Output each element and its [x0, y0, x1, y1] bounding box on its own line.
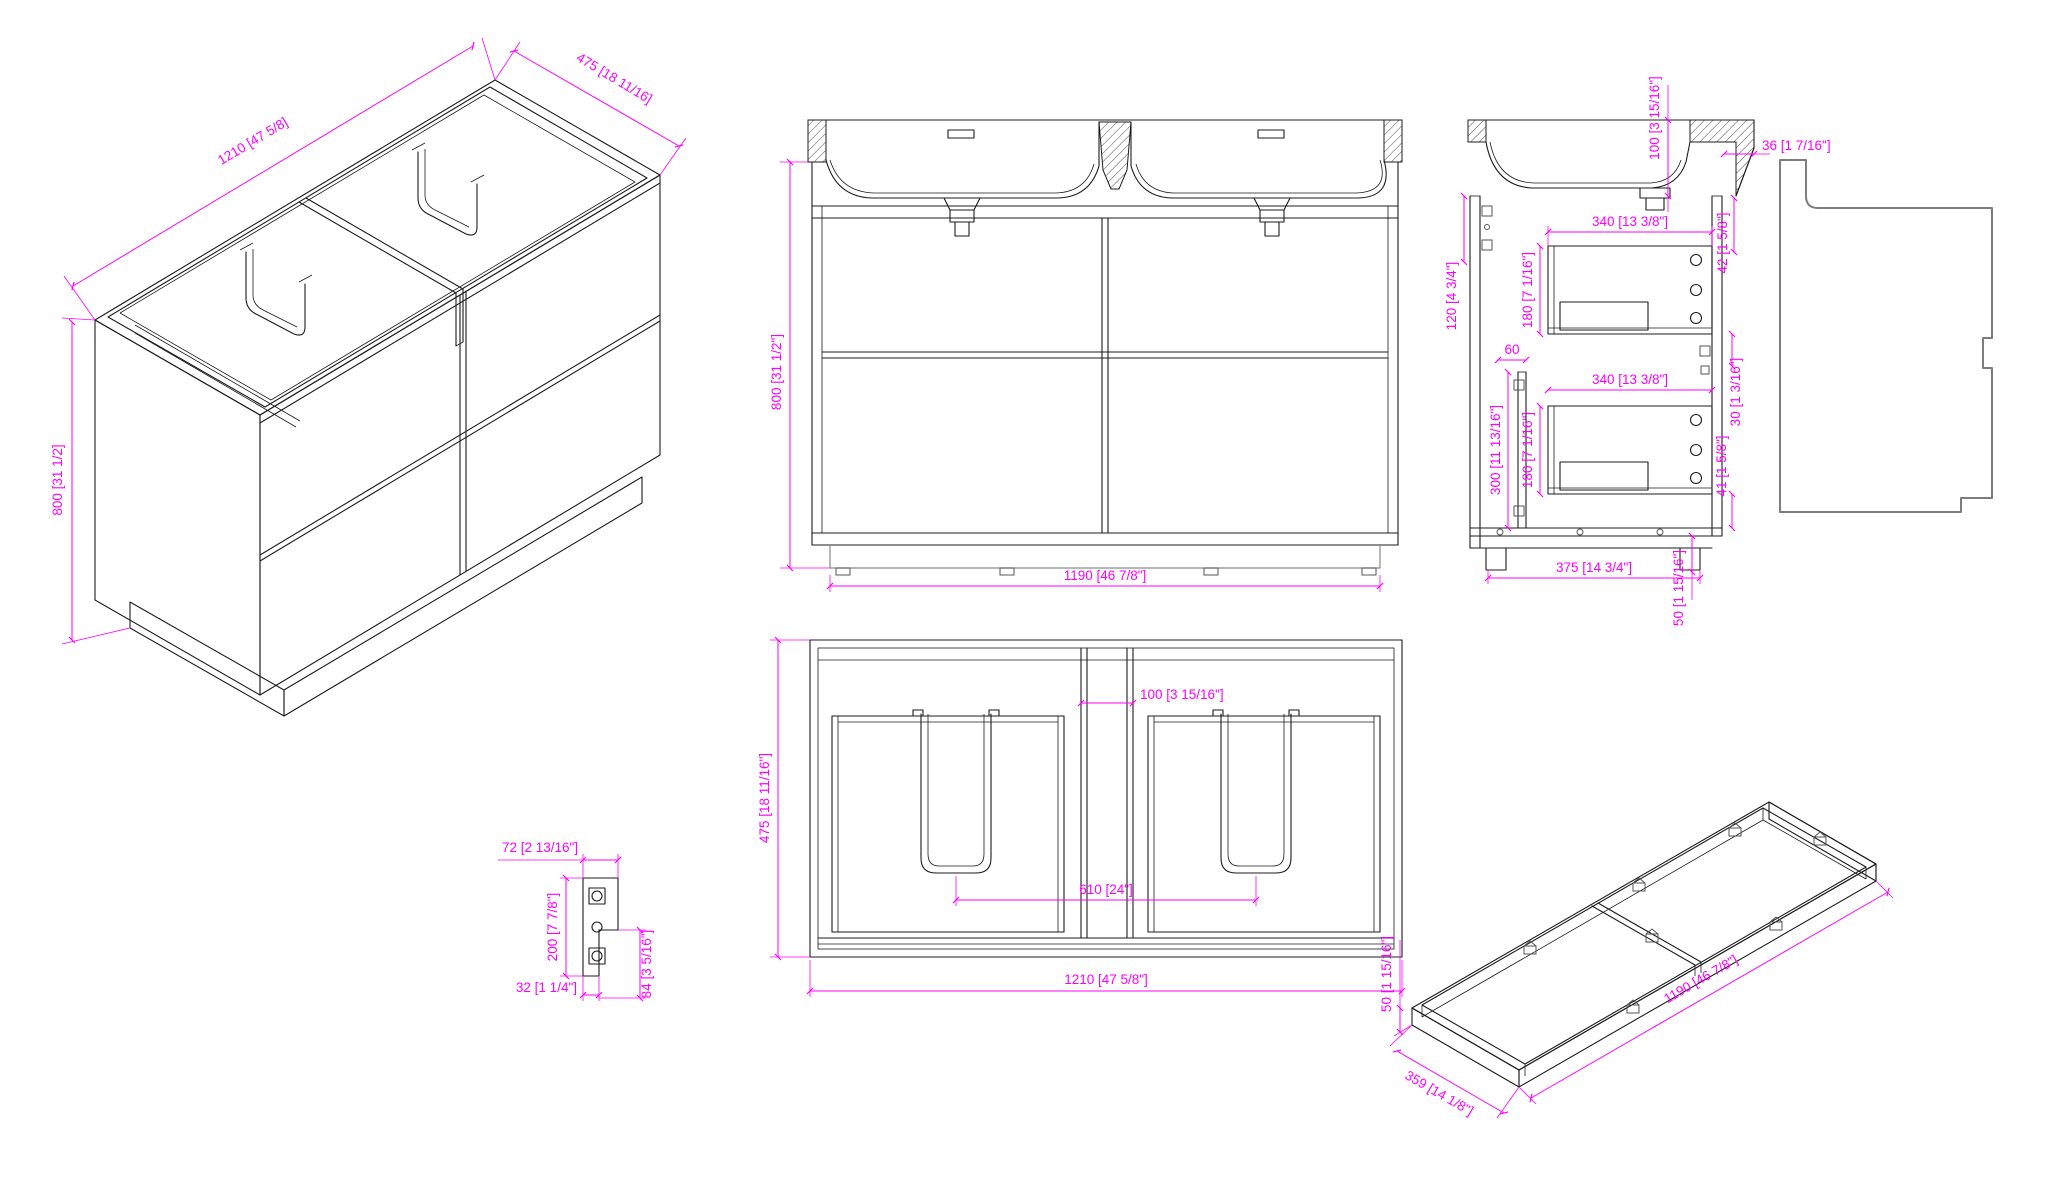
drain-trap-right: [1254, 198, 1290, 236]
dim-side-drawer2-height: 180 [7 1/16"]: [1520, 412, 1535, 488]
view-side-section: 100 [3 15/16"] 36 [1 7/16"] 42 [1 5/8"] …: [1444, 76, 1992, 626]
dim-frame-height: 50 [1 15/16"]: [1379, 936, 1394, 1012]
dim-side-drawer1-height: 180 [7 1/16"]: [1520, 252, 1535, 328]
dim-bracket-foot: 32 [1 1/4"]: [516, 980, 577, 995]
drawer-box-1-section: [1548, 246, 1712, 334]
side-counter-cut-front: [1690, 120, 1754, 196]
dim-side-overhang: 36 [1 7/16"]: [1762, 138, 1831, 153]
sink-bowl-left: [826, 122, 1099, 198]
technical-drawing-canvas: 1210 [47 5/8] 475 [18 11/16] 800 [31 1/2…: [0, 0, 2048, 1181]
dim-side-sink-depth: 100 [3 15/16"]: [1647, 76, 1662, 160]
overflow-slot-right: [1258, 130, 1284, 138]
dim-side-rail-offset: 60: [1504, 342, 1519, 357]
sink-support-u-left: [240, 243, 312, 335]
dim-iso-width: 1210 [47 5/8]: [215, 114, 290, 167]
counter-cut-right: [1384, 120, 1402, 162]
plan-sink-clearance-right: [1213, 710, 1299, 873]
plinth-left-face: [130, 602, 284, 716]
dim-iso-height: 800 [31 1/2]: [50, 444, 65, 515]
counter-cut-center: [1099, 122, 1131, 189]
sink-bowl-right: [1131, 122, 1386, 198]
side-panel-profile: [1780, 160, 1992, 512]
view-bracket-detail: 72 [2 13/16"] 200 [7 7/8"] 32 [1 1/4"] 8…: [498, 840, 654, 1001]
side-drain: [1640, 188, 1670, 210]
dim-front-height: 800 [31 1/2"]: [769, 334, 784, 410]
counter-cut-left: [808, 120, 826, 162]
overflow-slot-left: [948, 130, 974, 138]
view-front: 800 [31 1/2"] 1190 [46 7/8"]: [769, 120, 1402, 592]
dim-bracket-width: 72 [2 13/16"]: [502, 840, 578, 855]
drawer-box-2-section: [1548, 406, 1712, 494]
side-counter-cut-back: [1468, 120, 1486, 142]
dim-side-bottom-clearance: 41 [1 5/8"]: [1714, 435, 1729, 496]
dim-side-base-depth: 375 [14 3/4"]: [1556, 560, 1632, 575]
dim-plan-center-gap: 100 [3 15/16"]: [1140, 687, 1224, 702]
view-base-frame: 1190 [46 7/8"] 359 [14 1/8"] 50 [1 15/16…: [1379, 802, 1893, 1119]
view-isometric: 1210 [47 5/8] 475 [18 11/16] 800 [31 1/2…: [50, 38, 686, 716]
dim-side-mid-clearance: 30 [1 3/16"]: [1728, 358, 1743, 427]
dim-side-plinth-height: 50 [1 15/16"]: [1671, 550, 1686, 626]
drawing-sheet: 1210 [47 5/8] 475 [18 11/16] 800 [31 1/2…: [0, 0, 2048, 1181]
dim-side-drawer1-depth: 340 [13 3/8"]: [1592, 214, 1668, 229]
plinth-leg-back: [1486, 548, 1506, 570]
sink-support-u-right: [412, 143, 484, 235]
view-plan: 100 [3 15/16"] 475 [18 11/16"] 610 [24"]…: [757, 640, 1402, 997]
dim-frame-length: 1190 [46 7/8"]: [1661, 952, 1740, 1006]
dim-side-back-rail-bottom: 300 [11 13/16"]: [1488, 405, 1503, 495]
dim-plan-depth: 475 [18 11/16"]: [757, 753, 772, 843]
dim-front-base-width: 1190 [46 7/8"]: [1064, 568, 1147, 583]
dim-side-back-rail-top: 120 [4 3/4"]: [1444, 262, 1459, 331]
dim-plan-width: 1210 [47 5/8"]: [1064, 972, 1148, 987]
dim-side-top-clearance: 42 [1 5/8"]: [1715, 212, 1730, 273]
dim-plan-drain-spacing: 610 [24"]: [1079, 882, 1133, 897]
dim-bracket-height: 200 [7 7/8"]: [545, 893, 560, 962]
dim-side-drawer2-depth: 340 [13 3/8"]: [1592, 372, 1668, 387]
plinth-front-face: [284, 477, 642, 716]
plan-sink-clearance-left: [913, 710, 999, 873]
dim-bracket-step: 84 [3 5/16"]: [639, 930, 654, 999]
drain-trap-left: [944, 198, 980, 236]
dim-iso-depth: 475 [18 11/16]: [574, 50, 655, 107]
